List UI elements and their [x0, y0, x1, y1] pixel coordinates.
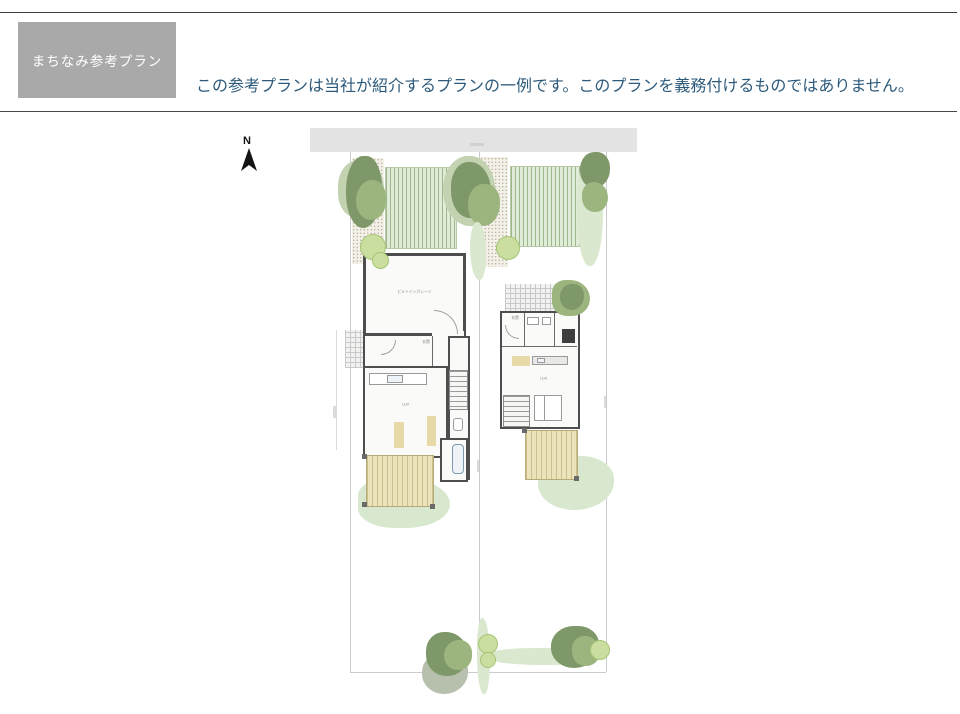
shrub	[590, 640, 610, 660]
sofa-right-arm	[534, 395, 545, 421]
tree	[356, 180, 386, 220]
furniture-left-2	[427, 416, 436, 446]
entrance-door-arc-left	[381, 340, 396, 355]
furniture-left-1	[394, 422, 404, 448]
toilet-left-house	[453, 418, 463, 431]
right-house-partition-v1	[524, 313, 525, 346]
deck-post	[574, 476, 579, 481]
wood-deck-left	[366, 455, 434, 507]
stairs-right-house	[503, 395, 530, 427]
shrub	[478, 634, 498, 654]
header-rule	[0, 111, 957, 112]
lot-boundary-left	[350, 152, 351, 672]
living-label-right: LDK	[540, 376, 547, 380]
compass-north-label: N	[243, 135, 251, 147]
right-house: 玄関 LDK	[500, 311, 580, 429]
tile-approach-right-house	[505, 284, 559, 314]
shrub	[372, 252, 389, 269]
bath-unit-right	[562, 329, 575, 343]
deck-post	[362, 454, 367, 459]
tree	[582, 182, 608, 212]
hall-partition	[432, 336, 433, 366]
plan-tag-label: まちなみ参考プラン	[32, 50, 163, 70]
right-house-partition-h	[502, 346, 577, 347]
road-dimension-mark	[470, 143, 484, 146]
washer-right	[542, 317, 551, 325]
lot-boundary-right	[606, 152, 607, 672]
stairs-left-house	[449, 370, 468, 410]
disclaimer-text: この参考プランは当社が紹介するプランの一例です。このプランを義務付けるものではあ…	[196, 72, 914, 96]
north-arrow-icon	[240, 148, 258, 172]
site-plan: ビルトインガレージ 玄関 LDK	[310, 126, 640, 686]
entrance-door-arc-right	[505, 325, 519, 339]
kitchen-sink-right	[537, 358, 545, 363]
tree	[444, 640, 472, 670]
plan-tag: まちなみ参考プラン	[18, 22, 176, 98]
washstand-right	[527, 317, 539, 325]
bathtub-left	[452, 444, 464, 474]
dimension-mark-right	[604, 396, 607, 408]
shrub	[480, 652, 496, 668]
kitchen-sink-left	[387, 375, 403, 383]
hedge	[470, 222, 486, 280]
wood-deck-right	[525, 430, 578, 480]
page: まちなみ参考プラン この参考プランは当社が紹介するプランの一例です。このプランを…	[0, 0, 960, 714]
deck-post	[430, 504, 435, 509]
dimension-mark-left	[333, 406, 336, 418]
right-house-partition-v2	[554, 313, 555, 346]
entrance-label-right: 玄関	[511, 315, 519, 320]
lawn-right-lot	[510, 166, 587, 247]
entrance-label-left: 玄関	[422, 339, 430, 344]
top-rule	[0, 12, 957, 13]
road-band	[310, 128, 637, 152]
dimension-line-left	[336, 330, 337, 450]
living-label-left: LDK	[402, 402, 409, 406]
bathroom-left-house	[440, 438, 468, 482]
garage-label: ビルトインガレージ	[394, 289, 435, 294]
deck-post	[522, 428, 527, 433]
dimension-mark-middle	[477, 460, 480, 472]
left-house-ldk: LDK	[363, 366, 448, 458]
kitchen-island-right	[512, 356, 530, 366]
deck-post	[362, 502, 367, 507]
shrub	[496, 236, 520, 260]
